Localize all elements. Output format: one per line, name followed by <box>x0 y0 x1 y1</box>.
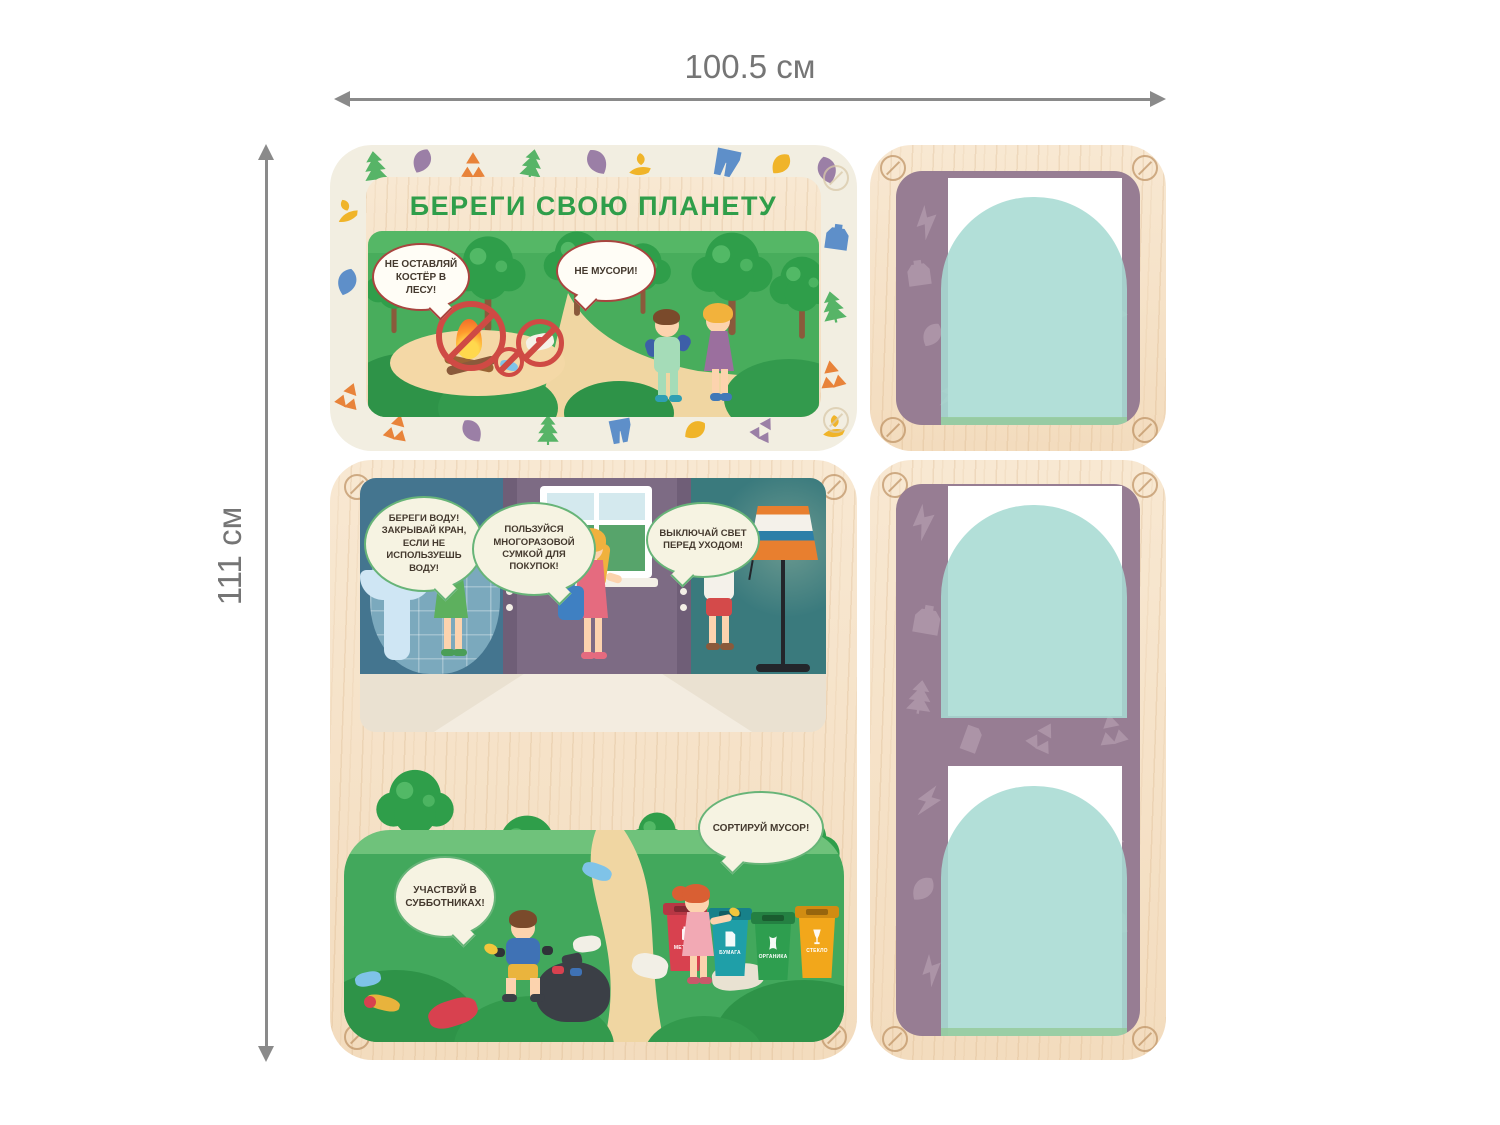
pocket <box>941 786 1127 1036</box>
pants-icon <box>604 415 638 448</box>
hand-leaf-icon <box>626 151 654 177</box>
height-dimension-label: 111 см <box>210 476 250 636</box>
speech-bubble-reusable-bag: ПОЛЬЗУЙСЯ МНОГОРАЗОВОЙ СУМКОЙ ДЛЯ ПОКУПО… <box>472 502 596 596</box>
screw-icon <box>1132 155 1158 181</box>
home-scene: БЕРЕГИ ВОДУ! ЗАКРЫВАЙ КРАН, ЕСЛИ НЕ ИСПО… <box>360 478 826 732</box>
sink-pedestal <box>384 598 410 660</box>
pocket-board-tall <box>870 460 1166 1060</box>
main-board: БЕРЕГИ ВОДУ! ЗАКРЫВАЙ КРАН, ЕСЛИ НЕ ИСПО… <box>330 460 857 1060</box>
lightning-icon <box>906 201 949 244</box>
screw-icon <box>1132 417 1158 443</box>
height-dimension-line <box>265 158 268 1046</box>
speech-bubble-lights-off: ВЫКЛЮЧАЙ СВЕТ ПЕРЕД УХОДОМ! <box>646 502 760 578</box>
pocket-board-small <box>870 145 1166 451</box>
speech-bubble-sort: СОРТИРУЙ МУСОР! <box>698 791 824 865</box>
speech-bubble-cleanup: УЧАСТВУЙ В СУББОТНИКАХ! <box>394 856 496 938</box>
screw-icon <box>882 1026 908 1052</box>
arrow-left-icon <box>334 91 350 107</box>
lightning-icon <box>908 780 950 822</box>
girl-sorting-trash <box>672 884 732 990</box>
girl-walking <box>698 303 742 413</box>
forest-scene: НЕ ОСТАВЛЯЙ КОСТЁР В ЛЕСУ! НЕ МУСОРИ! <box>368 231 819 417</box>
paper-icon <box>952 720 990 758</box>
pine-tree-icon <box>902 678 938 716</box>
screw-icon <box>1132 1026 1158 1052</box>
arrow-down-icon <box>258 1046 274 1062</box>
width-dimension-label: 100.5 см <box>600 48 900 86</box>
pine-tree-icon <box>534 415 562 445</box>
boy-walking <box>646 309 692 413</box>
leaf-icon <box>403 145 440 180</box>
speech-bubble-no-campfire: НЕ ОСТАВЛЯЙ КОСТЁР В ЛЕСУ! <box>372 243 470 311</box>
leaf-icon <box>330 263 366 301</box>
recycle-icon <box>1020 714 1066 760</box>
leaf-icon <box>453 412 492 451</box>
pocket <box>941 505 1127 718</box>
canister-icon <box>902 257 936 291</box>
recycle-icon <box>330 377 368 415</box>
tree-icon <box>766 253 819 341</box>
arrow-right-icon <box>1150 91 1166 107</box>
pocket-panel <box>896 484 1140 1036</box>
screw-icon <box>880 155 906 181</box>
screw-icon <box>880 417 906 443</box>
speech-bubble-save-water: БЕРЕГИ ВОДУ! ЗАКРЫВАЙ КРАН, ЕСЛИ НЕ ИСПО… <box>364 496 484 592</box>
width-dimension-line <box>348 98 1152 101</box>
screw-icon <box>1132 472 1158 498</box>
board-title: БЕРЕГИ СВОЮ ПЛАНЕТУ <box>366 191 821 222</box>
pocket-strip <box>941 1028 1127 1036</box>
canister-icon <box>820 221 854 255</box>
hand-leaf-icon <box>330 193 364 227</box>
boy-collecting-trash <box>496 910 554 1008</box>
speech-bubble-no-litter: НЕ МУСОРИ! <box>556 240 656 302</box>
lightning-icon <box>902 500 946 544</box>
title-board-wood-panel: БЕРЕГИ СВОЮ ПЛАНЕТУ <box>366 177 821 417</box>
pocket-panel <box>896 171 1140 425</box>
product-dimension-diagram: 100.5 см 111 см БЕРЕГИ <box>0 0 1500 1125</box>
title-board: БЕРЕГИ СВОЮ ПЛАНЕТУ <box>330 145 857 451</box>
pocket-strip <box>941 417 1127 425</box>
arrow-up-icon <box>258 144 274 160</box>
screw-icon <box>823 165 849 191</box>
leaf-icon <box>902 868 944 910</box>
screw-icon <box>823 407 849 433</box>
leaf-icon <box>677 412 713 448</box>
pocket <box>941 197 1127 425</box>
prohibition-icon <box>494 347 524 377</box>
